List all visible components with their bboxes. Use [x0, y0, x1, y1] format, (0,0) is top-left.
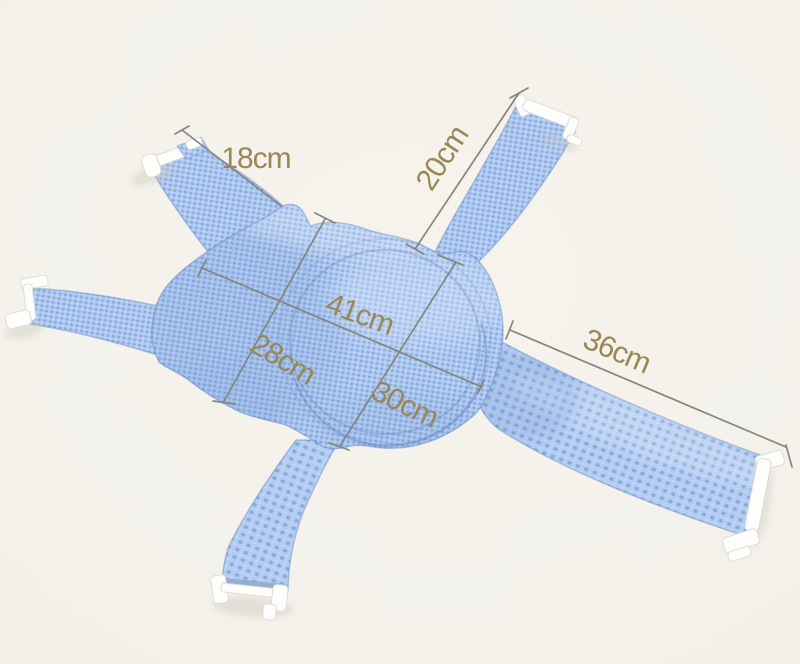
svg-text:18cm: 18cm — [221, 142, 290, 175]
svg-text:20cm: 20cm — [410, 120, 475, 196]
svg-text:36cm: 36cm — [578, 323, 655, 380]
